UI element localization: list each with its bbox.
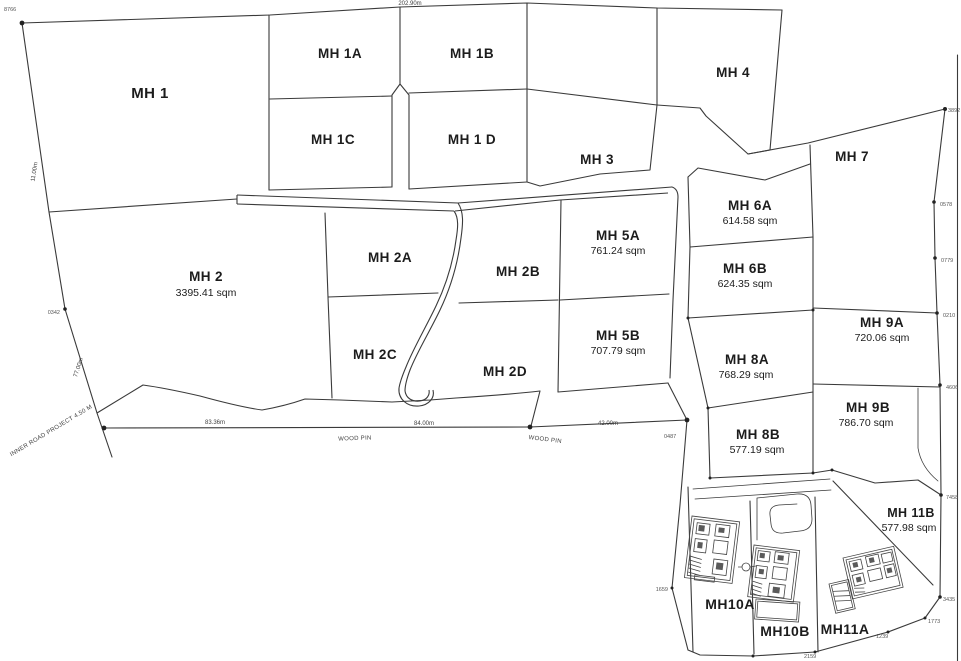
dim-left-upper: 11.00m: [31, 162, 40, 182]
marker-1239: 1239: [876, 634, 888, 640]
marker-8766: 8766: [4, 7, 16, 13]
plot-label-mh1b: MH 1B: [450, 46, 494, 61]
marker-1773: 1773: [928, 619, 940, 625]
area-label-mh8a: 768.29 sqm: [719, 369, 774, 381]
house-plan-mh10a: [684, 516, 739, 584]
plot-label-mh6b: MH 6B: [723, 261, 767, 276]
marker-0342: 0342: [48, 310, 60, 316]
area-label-mh5b: 707.79 sqm: [591, 345, 646, 357]
area-label-mh8b: 577.19 sqm: [730, 444, 785, 456]
plot-label-mh2b: MH 2B: [496, 264, 540, 279]
plot-label-mh1c: MH 1C: [311, 132, 355, 147]
plot-label-mh7: MH 7: [835, 149, 869, 164]
survey-marker-labels: 8766 0342 3892 0578 0779 0210 4606 7458 …: [4, 7, 960, 660]
plot-label-mh6a: MH 6A: [728, 198, 772, 213]
plot-label-mh10b: MH10B: [760, 623, 809, 639]
area-label-mh2: 3395.41 sqm: [176, 287, 237, 299]
area-label-mh5a: 761.24 sqm: [591, 245, 646, 257]
marker-0210: 0210: [943, 313, 955, 319]
survey-plan-page: MH 1 MH 1A MH 1B MH 1C MH 1 D MH 3 MH 4 …: [0, 0, 961, 661]
area-label-mh6a: 614.58 sqm: [723, 215, 778, 227]
plot-label-mh8b: MH 8B: [736, 427, 780, 442]
marker-2159: 2159: [804, 654, 816, 660]
dim-road-seg-2: 84.00m: [414, 421, 434, 427]
plot-label-mh9a: MH 9A: [860, 315, 904, 330]
marker-0779: 0779: [941, 258, 953, 264]
plot-label-mh11b: MH 11B: [887, 506, 935, 520]
plot-map: MH 1 MH 1A MH 1B MH 1C MH 1 D MH 3 MH 4 …: [0, 0, 961, 661]
plot-label-mh11a: MH11A: [821, 621, 870, 637]
plot-label-mh2c: MH 2C: [353, 347, 397, 362]
marker-3435: 3435: [943, 597, 955, 603]
plot-label-mh2: MH 2: [189, 269, 223, 284]
inner-road-label: INNER ROAD PROJECT 4.50 M: [9, 404, 93, 458]
house-plan-mh10b: [748, 545, 800, 602]
marker-0487: 0487: [664, 434, 676, 440]
inner-road: [237, 187, 672, 406]
marker-4606: 4606: [946, 385, 958, 391]
plot-label-mh5a: MH 5A: [596, 228, 640, 243]
plot-label-mh1: MH 1: [131, 85, 168, 102]
marker-7458: 7458: [946, 495, 958, 501]
plot-label-mh9b: MH 9B: [846, 400, 890, 415]
survey-dots: [20, 21, 947, 658]
area-label-mh9b: 786.70 sqm: [839, 417, 894, 429]
marker-0578: 0578: [940, 202, 952, 208]
dim-road-seg-3: 42.00m: [598, 421, 618, 427]
plot-label-mh5b: MH 5B: [596, 328, 640, 343]
plot-label-mh10a: MH10A: [705, 596, 754, 612]
area-label-mh9a: 720.06 sqm: [855, 332, 910, 344]
marker-1659: 1659: [656, 587, 668, 593]
wood-pin-label-1: WOOD PIN: [338, 435, 372, 442]
house-plan-mh11a: [843, 546, 903, 599]
dim-road-seg-1: 83.36m: [205, 420, 225, 426]
plot-label-mh8a: MH 8A: [725, 352, 769, 367]
area-label-mh6b: 624.35 sqm: [718, 278, 773, 290]
plot-label-mh2a: MH 2A: [368, 250, 412, 265]
marker-3892: 3892: [948, 108, 960, 114]
dim-top-edge: 202.90m: [398, 1, 421, 7]
plot-label-mh1a: MH 1A: [318, 46, 362, 61]
plot-label-mh1d: MH 1 D: [448, 132, 496, 147]
plot-label-mh4: MH 4: [716, 65, 750, 80]
wood-pin-label-2: WOOD PIN: [528, 435, 562, 445]
plot-label-mh3: MH 3: [580, 152, 614, 167]
plot-label-mh2d: MH 2D: [483, 364, 527, 379]
area-label-mh11b: 577.98 sqm: [882, 522, 937, 534]
